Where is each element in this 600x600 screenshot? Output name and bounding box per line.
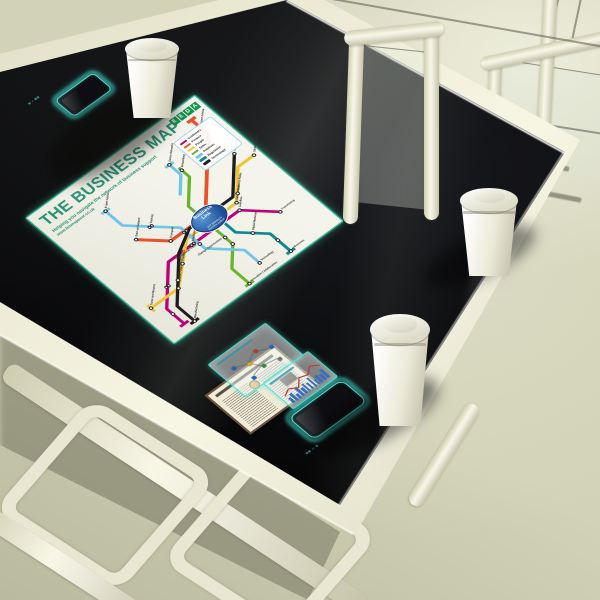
station-label: Technology bbox=[260, 251, 274, 262]
station-dot bbox=[148, 306, 154, 311]
cup-ridge bbox=[374, 343, 427, 346]
station-dot bbox=[176, 286, 181, 290]
station-dot bbox=[231, 151, 237, 156]
cup-ridge bbox=[128, 59, 176, 61]
coffee-cup bbox=[125, 38, 179, 118]
station-dot bbox=[192, 319, 198, 324]
station-dot bbox=[251, 153, 257, 158]
station-label: Transport bbox=[170, 227, 175, 238]
station-dot bbox=[168, 239, 173, 243]
station-dot bbox=[250, 231, 255, 235]
diagram-node bbox=[251, 375, 257, 380]
station-label: Training bbox=[150, 214, 154, 224]
station-label: International Trade bbox=[176, 244, 198, 260]
diagram-node bbox=[277, 357, 283, 362]
station-dot bbox=[133, 237, 139, 242]
station-label: Taxes and Returns bbox=[150, 284, 156, 305]
cup-ridge bbox=[463, 211, 514, 214]
station-dot bbox=[237, 208, 242, 212]
station-label: Manufacturing bbox=[194, 302, 199, 319]
station-dot bbox=[275, 238, 280, 242]
station-label: Change Opportunities bbox=[198, 238, 223, 257]
station-label: Start-up Support bbox=[135, 218, 141, 237]
rendered-scene: Taxes and ReturnsInnovation FinancePremi… bbox=[0, 0, 600, 600]
station-dot bbox=[230, 242, 235, 246]
diagram-link bbox=[264, 358, 277, 365]
diagram-node bbox=[269, 344, 275, 349]
near-chair-panel bbox=[352, 44, 432, 210]
diagram-link bbox=[253, 365, 262, 375]
station-dot bbox=[166, 162, 172, 167]
cup-lid-top bbox=[383, 316, 417, 333]
station-label: Cashflow bbox=[238, 197, 243, 208]
station-label: Networking bbox=[181, 154, 186, 167]
station-dot bbox=[170, 312, 175, 316]
station-label: Sector Networks bbox=[168, 143, 174, 162]
near-rail-leg bbox=[424, 24, 439, 220]
coffee-cup bbox=[460, 188, 518, 276]
station-dot bbox=[102, 209, 108, 214]
coffee-cup bbox=[370, 314, 430, 426]
station-label: Business Rates bbox=[237, 173, 243, 191]
station-label: e-Business bbox=[291, 239, 305, 249]
station-label: Franchising bbox=[281, 199, 296, 210]
cup-lid-top bbox=[473, 190, 505, 203]
station-dot bbox=[179, 168, 185, 173]
station-label: Digital Marketing bbox=[252, 211, 258, 231]
legend-swatch bbox=[203, 159, 211, 165]
cup-lid-top bbox=[137, 40, 167, 52]
